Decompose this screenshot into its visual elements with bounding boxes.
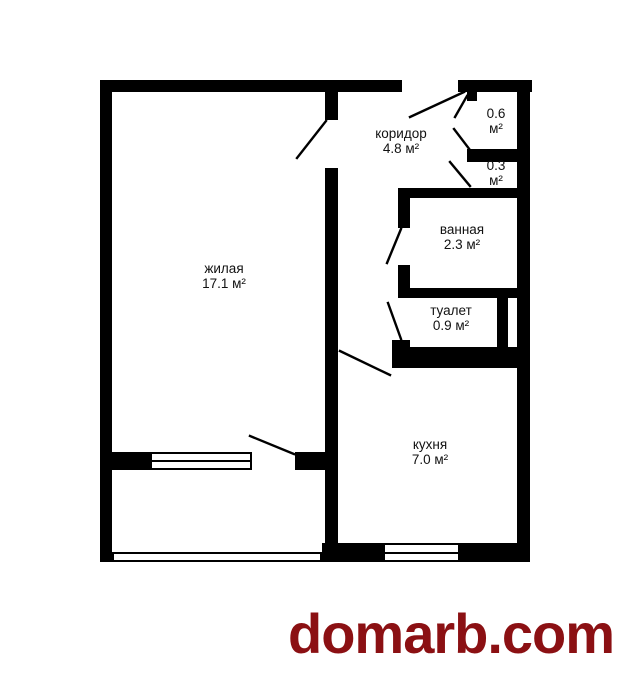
balcony-door-swing (250, 436, 294, 454)
room-name: кухня (370, 437, 490, 452)
room-area: 4.8 м² (341, 141, 461, 156)
room-area: 0.9 м² (391, 318, 511, 333)
room-area: 2.3 м² (402, 237, 522, 252)
floor-plan: жилая 17.1 м² коридор 4.8 м² 0.6 м² 0.3 … (0, 0, 630, 684)
room-label-corridor: коридор 4.8 м² (341, 126, 461, 156)
kitchen-door-swing (340, 351, 390, 375)
room-area-value: 0.6 (466, 106, 526, 121)
room-name: ванная (402, 222, 522, 237)
bathroom-door-swing (387, 229, 401, 263)
room-area-value: 0.3 (466, 158, 526, 173)
room-name: туалет (391, 303, 511, 318)
room-name: коридор (341, 126, 461, 141)
room-area: 7.0 м² (370, 452, 490, 467)
door-swing-overlay (0, 0, 630, 684)
room-label-bathroom: ванная 2.3 м² (402, 222, 522, 252)
room-label-storage-small: 0.3 м² (466, 158, 526, 188)
room-label-kitchen: кухня 7.0 м² (370, 437, 490, 467)
room-label-living: жилая 17.1 м² (154, 261, 294, 291)
room-label-toilet: туалет 0.9 м² (391, 303, 511, 333)
room-area-unit: м² (466, 121, 526, 136)
room-name: жилая (154, 261, 294, 276)
room-area: 17.1 м² (154, 276, 294, 291)
room-label-storage-large: 0.6 м² (466, 106, 526, 136)
room-area-unit: м² (466, 173, 526, 188)
living-door-swing (297, 121, 326, 158)
site-watermark: domarb.com (288, 603, 612, 665)
